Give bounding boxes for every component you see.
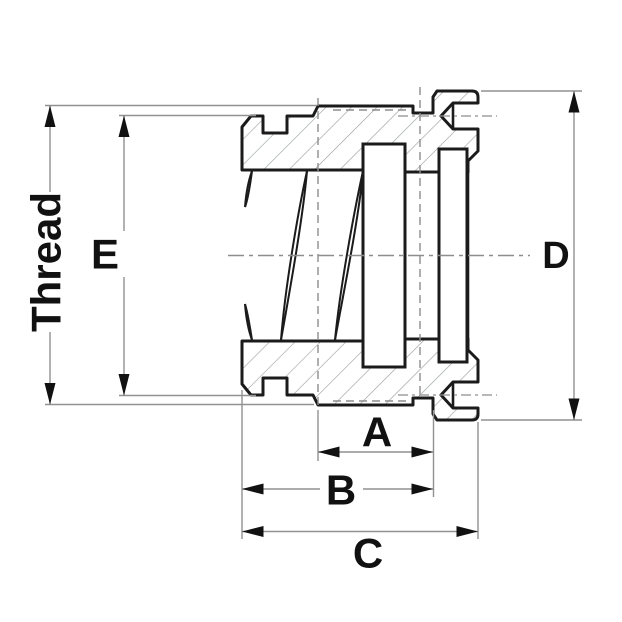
a-arrow-left-icon [318,447,340,458]
thread-arrow-up-icon [45,106,56,128]
c-arrow-right-icon [457,526,479,537]
b-arrow-left-icon [242,484,264,495]
a-arrow-right-icon [412,447,434,458]
e-arrow-up-icon [119,116,130,138]
dimension-label-c: C [353,530,383,577]
thread-arrow-down-icon [45,383,56,405]
dimension-label-b: B [326,467,356,514]
d-arrow-down-icon [569,399,580,421]
dimension-label-thread: Thread [23,192,70,332]
c-arrow-left-icon [242,526,264,537]
technical-drawing: Thread E D A B C [0,0,622,622]
e-arrow-down-icon [119,374,130,396]
dimension-label-a: A [362,409,392,456]
b-arrow-right-icon [412,484,434,495]
drawing-canvas: Thread E D A B C [0,0,622,622]
d-arrow-up-icon [569,91,580,113]
dimension-label-e: E [91,231,119,278]
dimension-label-d: D [542,235,569,277]
